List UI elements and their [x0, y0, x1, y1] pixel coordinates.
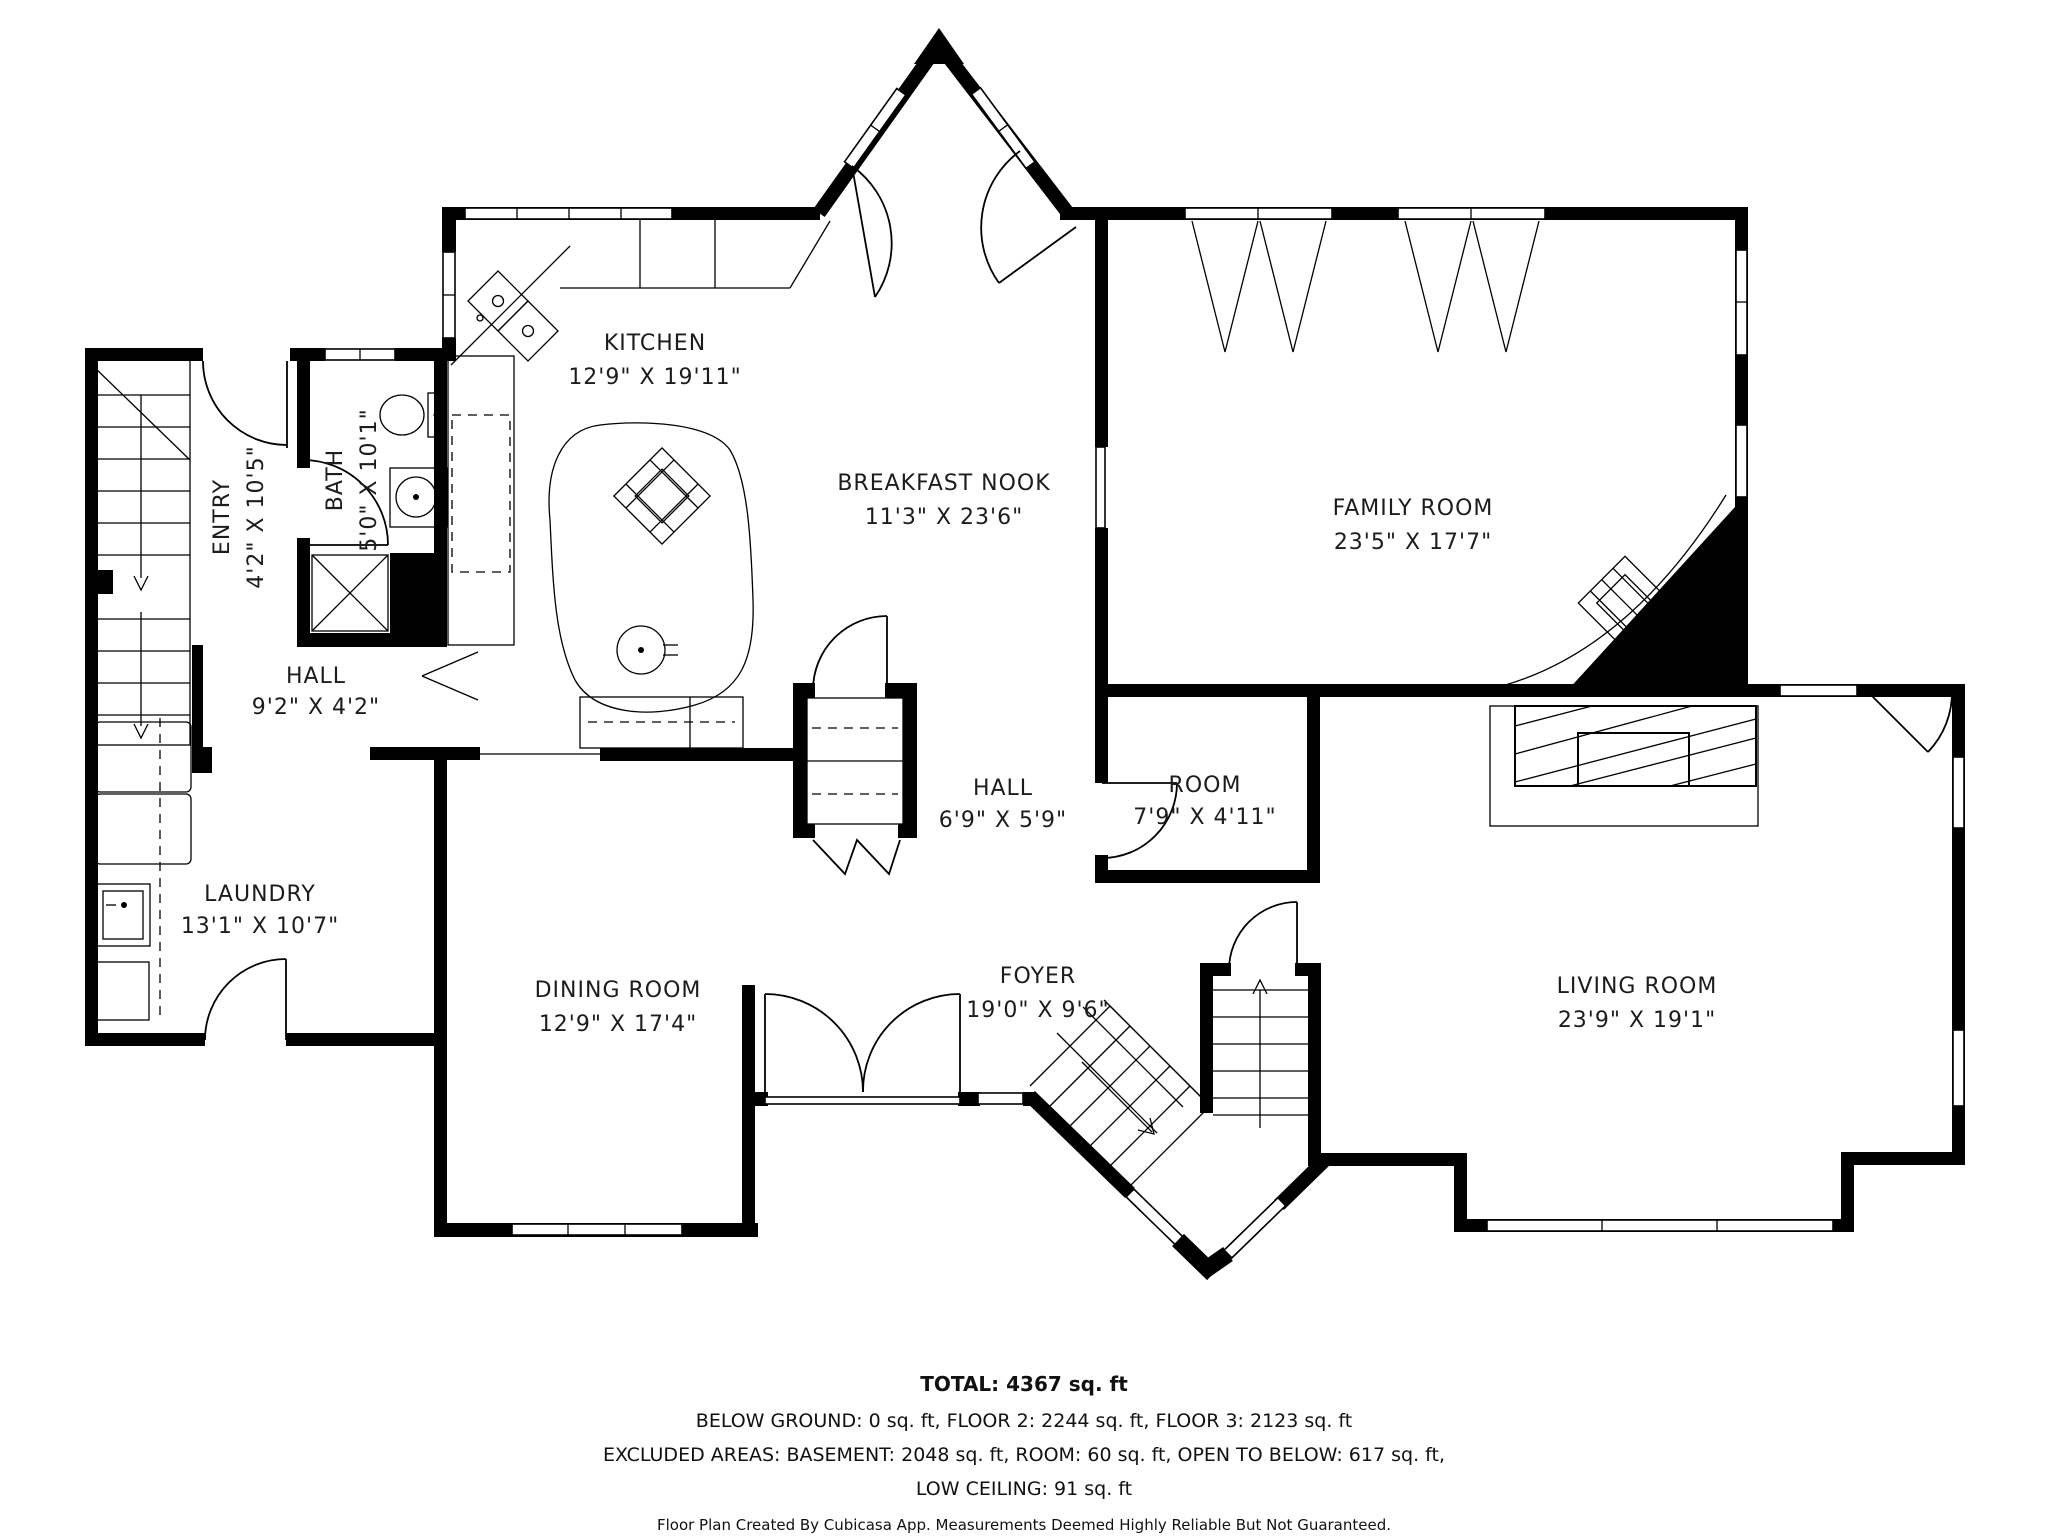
laundry-sink	[96, 884, 150, 946]
svg-text:KITCHEN: KITCHEN	[604, 331, 706, 356]
svg-text:FOYER: FOYER	[1000, 964, 1076, 989]
svg-text:23'5" X 17'7": 23'5" X 17'7"	[1334, 530, 1492, 555]
label-family-room: FAMILY ROOM23'5" X 17'7"	[1333, 496, 1494, 555]
svg-text:4'2" X 10'5": 4'2" X 10'5"	[244, 445, 269, 588]
svg-text:ROOM: ROOM	[1169, 773, 1242, 798]
dryer	[95, 794, 191, 864]
kitchen-island	[549, 423, 753, 712]
foyer-up-stairs	[1213, 980, 1308, 1128]
svg-text:BATH: BATH	[323, 449, 348, 511]
svg-text:HALL: HALL	[973, 776, 1033, 801]
deck-door-arc	[1928, 690, 1952, 752]
svg-text:LIVING ROOM: LIVING ROOM	[1557, 974, 1718, 999]
svg-text:7'9" X 4'11": 7'9" X 4'11"	[1133, 805, 1276, 830]
label-dining-room: DINING ROOM12'9" X 17'4"	[535, 978, 702, 1037]
svg-text:12'9" X 17'4": 12'9" X 17'4"	[539, 1012, 697, 1037]
label-foyer: FOYER19'0" X 9'6"	[966, 964, 1109, 1023]
washer	[95, 722, 191, 792]
svg-text:12'9" X 19'11": 12'9" X 19'11"	[568, 365, 741, 390]
svg-text:5'0" X 10'1": 5'0" X 10'1"	[357, 408, 382, 551]
floor-areas: BELOW GROUND: 0 sq. ft, FLOOR 2: 2244 sq…	[0, 1410, 2048, 1432]
label-entry: ENTRY4'2" X 10'5"	[210, 445, 269, 588]
closet-bifold-door	[813, 840, 900, 874]
total-area: TOTAL: 4367 sq. ft	[0, 1372, 2048, 1396]
label-kitchen: KITCHEN12'9" X 19'11"	[568, 331, 741, 390]
nook-right-door-arc	[981, 151, 1020, 283]
label-laundry: LAUNDRY13'1" X 10'7"	[181, 882, 339, 939]
label-room: ROOM7'9" X 4'11"	[1133, 773, 1276, 830]
toilet-bowl	[380, 395, 424, 435]
front-door-left-arc	[765, 994, 863, 1092]
svg-text:ENTRY: ENTRY	[210, 479, 235, 555]
front-door-right-arc	[863, 994, 960, 1092]
label-breakfast-nook: BREAKFAST NOOK11'3" X 23'6"	[837, 471, 1050, 530]
svg-text:DINING ROOM: DINING ROOM	[535, 978, 702, 1003]
svg-text:HALL: HALL	[286, 664, 346, 689]
excluded-areas: EXCLUDED AREAS: BASEMENT: 2048 sq. ft, R…	[0, 1444, 2048, 1466]
svg-text:23'9" X 19'1": 23'9" X 19'1"	[1558, 1008, 1716, 1033]
kitchen-counters	[448, 220, 830, 748]
label-hall-center: HALL6'9" X 5'9"	[939, 776, 1067, 833]
svg-text:LAUNDRY: LAUNDRY	[204, 882, 316, 907]
laundry-fixtures	[95, 718, 191, 1020]
label-hall-west: HALL9'2" X 4'2"	[252, 664, 380, 720]
svg-text:13'1" X 10'7": 13'1" X 10'7"	[181, 914, 339, 939]
svg-text:BREAKFAST NOOK: BREAKFAST NOOK	[837, 471, 1050, 496]
svg-text:9'2" X 4'2": 9'2" X 4'2"	[252, 695, 380, 720]
label-living-room: LIVING ROOM23'9" X 19'1"	[1557, 974, 1718, 1033]
disclaimer: Floor Plan Created By Cubicasa App. Meas…	[0, 1516, 2048, 1534]
closet-door-arc	[813, 616, 887, 690]
laundry-cabinet	[95, 962, 149, 1020]
svg-text:FAMILY ROOM: FAMILY ROOM	[1333, 496, 1494, 521]
laundry-door-arc	[205, 959, 286, 1040]
living-room-fireplace	[1490, 706, 1758, 826]
walls	[85, 28, 1965, 1274]
basement-stairs	[1030, 1000, 1210, 1186]
entry-stairs	[92, 360, 190, 745]
area-summary: TOTAL: 4367 sq. ft BELOW GROUND: 0 sq. f…	[0, 1372, 2048, 1534]
entry-door-arc	[203, 361, 287, 445]
label-bath: BATH5'0" X 10'1"	[323, 408, 382, 551]
floor-plan: KITCHEN12'9" X 19'11" BREAKFAST NOOK11'3…	[0, 0, 2048, 1536]
svg-text:6'9" X 5'9": 6'9" X 5'9"	[939, 808, 1067, 833]
low-ceiling-area: LOW CEILING: 91 sq. ft	[0, 1478, 2048, 1500]
closet-interior	[807, 698, 903, 824]
stair-door-arc	[1229, 902, 1297, 970]
svg-text:11'3" X 23'6": 11'3" X 23'6"	[865, 505, 1023, 530]
svg-text:19'0" X 9'6": 19'0" X 9'6"	[966, 998, 1109, 1023]
kitchen-corner-sink	[468, 271, 558, 361]
curtain-icons	[1192, 221, 1539, 352]
